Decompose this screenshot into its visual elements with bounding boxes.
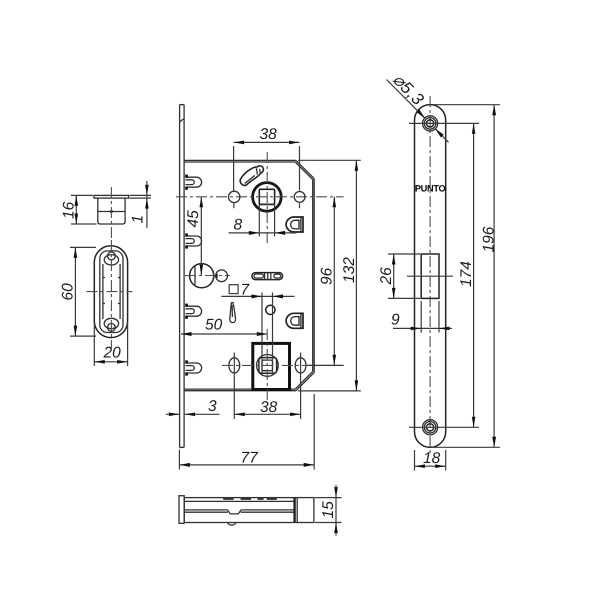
svg-text:9: 9 bbox=[391, 312, 400, 329]
svg-text:174: 174 bbox=[458, 261, 475, 287]
svg-text:3: 3 bbox=[208, 398, 217, 415]
svg-text:60: 60 bbox=[60, 283, 77, 301]
svg-text:38: 38 bbox=[260, 399, 278, 416]
svg-text:1: 1 bbox=[130, 215, 147, 224]
svg-text:196: 196 bbox=[480, 226, 497, 252]
svg-text:20: 20 bbox=[103, 345, 122, 362]
svg-text:50: 50 bbox=[205, 316, 223, 333]
svg-text:18: 18 bbox=[423, 450, 441, 467]
svg-text:132: 132 bbox=[341, 257, 358, 283]
svg-text:16: 16 bbox=[61, 201, 78, 219]
svg-text:38: 38 bbox=[260, 126, 278, 143]
svg-text:96: 96 bbox=[319, 267, 336, 285]
svg-text:26: 26 bbox=[378, 267, 395, 286]
svg-text:15: 15 bbox=[320, 501, 337, 519]
svg-text:PUNTO: PUNTO bbox=[415, 184, 446, 194]
svg-text:45: 45 bbox=[185, 210, 202, 228]
svg-text:77: 77 bbox=[241, 450, 260, 467]
svg-text:8: 8 bbox=[234, 217, 243, 234]
